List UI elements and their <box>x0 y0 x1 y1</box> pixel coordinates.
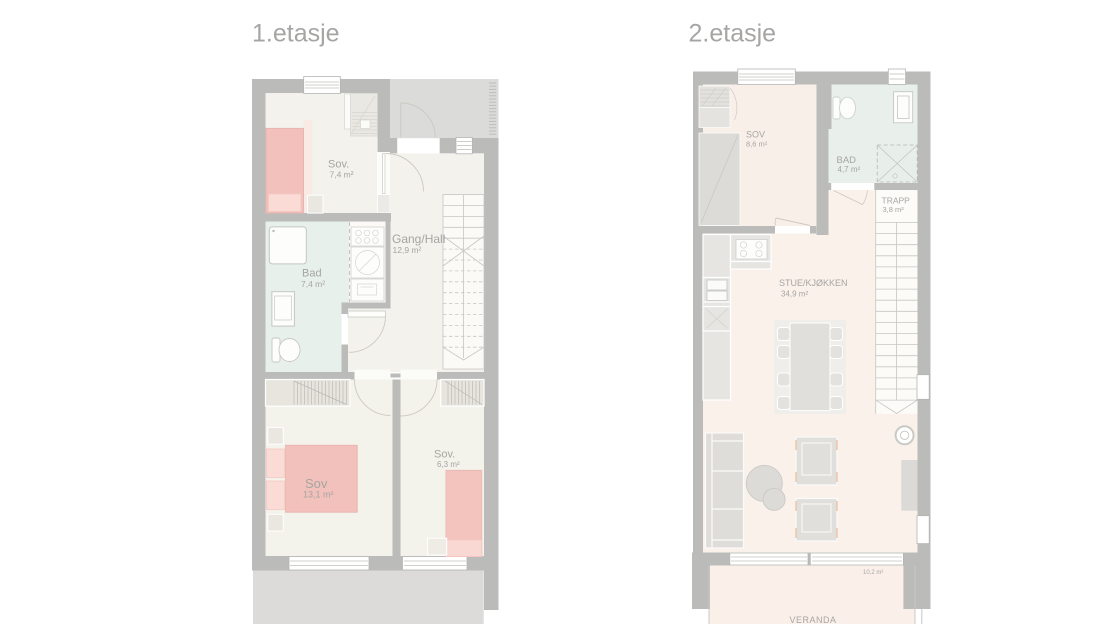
svg-text:8,6 m²: 8,6 m² <box>746 140 768 149</box>
svg-text:7,4 m²: 7,4 m² <box>330 170 354 180</box>
svg-text:3,8 m²: 3,8 m² <box>883 205 905 214</box>
svg-text:Sov.: Sov. <box>434 449 455 461</box>
svg-text:6,3 m²: 6,3 m² <box>437 460 460 469</box>
svg-text:1.etasje: 1.etasje <box>252 20 340 48</box>
svg-text:TRAPP: TRAPP <box>882 196 911 206</box>
svg-text:2.etasje: 2.etasje <box>689 20 777 48</box>
svg-text:VERANDA: VERANDA <box>790 615 837 624</box>
svg-text:7,4 m²: 7,4 m² <box>301 279 325 289</box>
svg-text:Bad: Bad <box>302 268 322 280</box>
svg-text:STUE/KJØKKEN: STUE/KJØKKEN <box>779 278 848 288</box>
svg-text:Gang/Hall: Gang/Hall <box>392 232 445 246</box>
svg-text:34,9 m²: 34,9 m² <box>781 290 808 299</box>
svg-text:13,1 m²: 13,1 m² <box>303 490 334 500</box>
svg-text:SOV: SOV <box>746 130 765 140</box>
svg-text:10,2 m²: 10,2 m² <box>863 570 883 576</box>
svg-text:12,9 m²: 12,9 m² <box>393 245 422 255</box>
svg-text:4,7 m²: 4,7 m² <box>838 165 861 174</box>
